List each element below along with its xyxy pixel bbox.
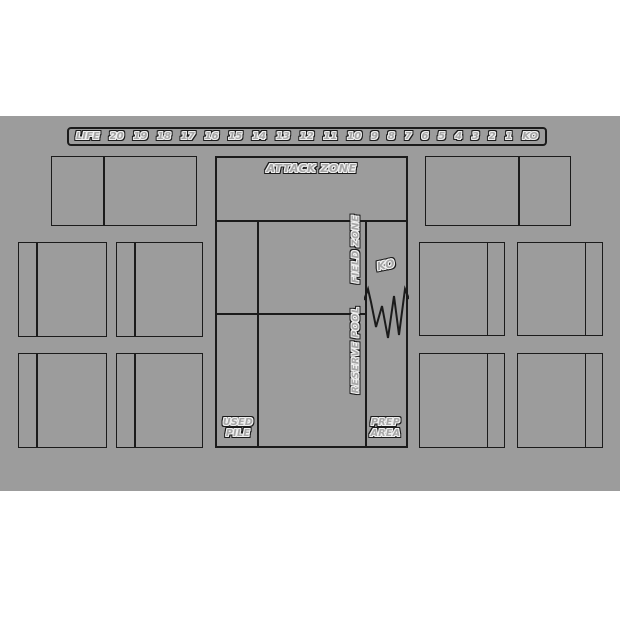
attack-zone-label: ATTACK ZONE [217, 162, 406, 175]
life-value: 15 [228, 131, 242, 142]
life-value: 8 [388, 131, 395, 142]
life-value: 12 [300, 131, 314, 142]
life-value: 2 [489, 131, 496, 142]
life-value: 4 [455, 131, 462, 142]
left-top-zone-divider [103, 157, 105, 225]
right-top-card-zone [425, 156, 571, 226]
left-card-slot-3 [18, 353, 107, 448]
playmat: LIFE 20 19 18 17 16 15 14 13 12 11 10 9 … [0, 116, 620, 491]
life-value: 13 [276, 131, 290, 142]
left-card-slot-4 [116, 353, 203, 448]
card-stack-strip [36, 243, 38, 336]
prep-area-label: PREP AREA [364, 418, 407, 440]
card-stack-strip [134, 354, 136, 447]
life-value: 10 [347, 131, 361, 142]
life-track: LIFE 20 19 18 17 16 15 14 13 12 11 10 9 … [67, 127, 547, 146]
life-value: 19 [133, 131, 147, 142]
card-stack-strip [487, 243, 489, 335]
card-stack-strip [36, 354, 38, 447]
reserve-pool-label: RESERVE POOL [351, 307, 362, 394]
card-stack-strip [487, 354, 489, 447]
life-value: 17 [181, 131, 195, 142]
right-card-slot-1 [419, 242, 505, 336]
attack-zone-border [217, 220, 406, 222]
left-top-card-zone [51, 156, 197, 226]
life-track-label: LIFE [76, 131, 100, 142]
life-value: 20 [110, 131, 124, 142]
life-value: 14 [252, 131, 266, 142]
right-top-zone-divider [518, 157, 520, 225]
left-card-slot-2 [116, 242, 203, 337]
right-card-slot-3 [419, 353, 505, 448]
life-value: 7 [405, 131, 412, 142]
life-value: 6 [421, 131, 428, 142]
card-stack-strip [585, 243, 587, 335]
life-value: 18 [157, 131, 171, 142]
life-value: 1 [506, 131, 513, 142]
used-pile-column-border [257, 220, 259, 446]
field-reserve-divider [217, 313, 367, 315]
right-card-slot-4 [517, 353, 603, 448]
life-value: 9 [371, 131, 378, 142]
card-stack-strip [585, 354, 587, 447]
play-area: ATTACK ZONE FIELD ZONE RESERVE POOL KO U… [215, 156, 408, 448]
card-stack-strip [134, 243, 136, 336]
life-value: 16 [205, 131, 219, 142]
life-value-ko: KO [522, 131, 538, 142]
life-value: 11 [324, 131, 338, 142]
life-value: 5 [438, 131, 445, 142]
life-value: 3 [472, 131, 479, 142]
used-pile-label: USED PILE [218, 418, 258, 440]
left-card-slot-1 [18, 242, 107, 337]
right-card-slot-2 [517, 242, 603, 336]
ko-zone-label: KO [376, 257, 396, 273]
field-zone-label: FIELD ZONE [351, 215, 362, 283]
ko-burst-border [364, 284, 409, 342]
